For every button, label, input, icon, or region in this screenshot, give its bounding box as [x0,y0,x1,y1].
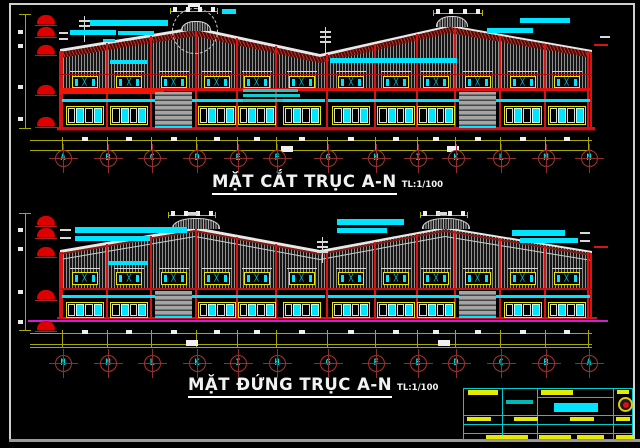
elevation-upper-louver-window: ╳ [289,272,315,285]
elevation-canopy [500,295,546,298]
elevation-steel-column [106,244,108,317]
section-dim-value-tick [214,137,220,141]
title-block-text-bar [486,435,528,439]
elevation-ridge-dim-end [168,212,169,218]
elevation-ridge-dim-tick [171,211,175,216]
section-wall-joint-line [552,71,582,72]
section-upper-louver-window: ╳ [554,76,580,88]
elevation-grid-bubble: N [55,355,72,372]
elevation-grid-bubble: B [538,355,555,372]
section-ridge-dim-end [217,8,218,14]
elevation-dim-grid-tick [545,330,546,347]
section-level-value-tick [18,85,23,89]
section-roller-door [459,92,496,128]
title-block-row-line [537,397,613,398]
elevation-steel-column [544,245,546,317]
section-dim-value-tick [254,137,260,141]
section-note-bar [330,58,457,63]
elevation-title: MẶT ĐỨNG TRỤC A-N [188,375,392,398]
elevation-dim-grid-tick [455,330,456,347]
section-window [332,106,370,125]
section-grid-bubble: F [269,150,286,167]
section-ridge-dim-end [482,10,483,16]
section-upper-louver-window: ╳ [161,76,187,88]
section-level-marker-icon [37,117,55,127]
elevation-steel-column [499,238,501,317]
section-ridge-dim-tick [211,7,215,12]
section-wall-joint-line [242,71,272,72]
elevation-roof-monitor [422,218,470,229]
section-lightning-rod-arm [79,20,90,22]
section-upper-louver-window: ╳ [383,76,409,88]
section-upper-louver-window: ╳ [244,76,270,88]
elevation-level-marker-icon [37,321,55,331]
elevation-level-marker-icon [37,290,55,300]
elevation-grid-bubble: M [100,355,117,372]
section-steel-column [106,43,108,127]
section-window [504,106,542,125]
section-grid-bubble: A [55,150,72,167]
elevation-dim-value-tick [171,330,177,334]
elevation-window [377,302,415,318]
elevation-grid-bubble: A [581,355,598,372]
section-upper-louver-window: ╳ [465,76,491,88]
elevation-level-dim-line [25,213,26,330]
elevation-upper-louver-window: ╳ [244,272,270,285]
section-ridge-dim-tick [463,9,467,14]
elevation-grid-bubble: D [448,355,465,372]
title-block-text-bar [514,417,538,421]
section-dim-value-tick [520,137,526,141]
section-note-bar [487,28,533,33]
section-grid-bubble: D [189,150,206,167]
section-ridge-dim-tick [173,7,177,12]
section-wall-joint-line [114,71,144,72]
elevation-dim-value-tick [126,330,132,334]
section-level-marker-base [35,25,57,26]
elevation-ref-dash [188,212,198,215]
elevation-window [66,302,104,318]
title-block-text-bar [577,435,604,439]
elevation-level-marker-icon [37,216,55,226]
section-level-value-tick [18,30,23,34]
section-window [238,106,276,125]
elevation-edge-post [590,253,593,317]
section-window [377,106,415,125]
section-note-bar [90,20,168,26]
elevation-ref-dash [60,229,71,231]
elevation-level-value-tick [18,290,23,294]
elevation-dim-grid-tick [417,330,418,347]
elevation-dim-grid-tick [500,330,501,347]
title-block-row-line [463,415,633,416]
title-block-text-bar [616,435,633,439]
elevation-grid-bubble: E [410,355,427,372]
section-upper-louver-window: ╳ [510,76,536,88]
section-dim-value-tick [82,137,88,141]
elevation-window [504,302,542,318]
elevation-level-value-tick [18,320,23,324]
elevation-dim-value-tick [299,330,305,334]
section-roof-monitor [436,16,468,27]
section-canopy [328,99,374,102]
elevation-steel-column [150,236,152,317]
section-level-dim-stub [19,128,31,129]
elevation-wall-joint-line [159,268,189,269]
section-dim-line-1 [30,140,592,141]
section-beam [60,88,164,94]
elevation-level-marker-base [35,331,57,332]
sheet-frame-top [9,3,634,5]
elevation-dim-grid-tick [62,330,63,347]
section-ridge-dim-tick [476,9,480,14]
section-grid-bubble: K [448,150,465,167]
section-note-bar [520,18,570,23]
section-canopy [500,99,546,102]
section-wall-joint-line [159,71,189,72]
section-dim-value-tick [348,137,354,141]
elevation-canopy [544,295,590,298]
section-upper-louver-window: ╳ [204,76,230,88]
elevation-wall-joint-line [202,268,232,269]
elevation-dim-value-tick [393,330,399,334]
elevation-canopy [328,295,374,298]
elevation-upper-louver-window: ╳ [204,272,230,285]
section-level-marker-base [35,55,57,56]
title-block-text-bar [539,435,571,439]
elevation-steel-column [61,252,63,317]
section-upper-louver-window: ╳ [72,76,98,88]
elevation-dim-value-tick [214,330,220,334]
elevation-ridge-dim-tick [448,211,452,216]
section-canopy [544,99,590,102]
section-lightning-rod-arm [79,25,90,27]
elevation-canopy [106,295,152,298]
elevation-wall-joint-line [552,268,582,269]
elevation-ridge-dim-tick [461,211,465,216]
section-title-group: MẶT CẮT TRỤC A-N TL:1/100 [212,172,443,195]
elevation-lightning-rod-arm [317,251,328,253]
section-dim-value-tick [299,137,305,141]
elevation-grid-bubble: L [144,355,161,372]
elevation-wall-joint-line [242,268,272,269]
elevation-wall-joint-line [421,268,451,269]
elevation-note-bar [337,228,387,233]
section-upper-louver-window: ╳ [116,76,142,88]
section-note-bar [103,39,115,42]
title-block-row-line [463,433,633,434]
elevation-note-bar [108,261,148,265]
elevation-dim-grid-tick [375,330,376,347]
section-spec-note-line [243,94,300,97]
section-canopy [62,99,108,102]
elevation-lightning-rod-arm [317,241,328,243]
elevation-upper-louver-window: ╳ [72,272,98,285]
section-steel-column [499,36,501,127]
elevation-ref-dash [437,212,447,215]
elevation-overall-dim-tick [438,340,450,346]
section-beam [60,74,592,75]
elevation-dim-line-1 [30,333,592,334]
section-level-marker-base [35,95,57,96]
section-grid-bubble: E [230,150,247,167]
elevation-canopy [62,295,108,298]
title-block-row-line [463,424,633,425]
elevation-wall-joint-line [336,268,366,269]
elevation-dim-value-tick [564,330,570,334]
elevation-level-marker-base [35,257,57,258]
elevation-level-value-tick [18,228,23,232]
section-canopy [279,99,325,102]
title-block-text-bar [468,390,498,395]
title-block-text-bar [570,417,594,421]
section-level-marker-icon [37,15,55,25]
section-upper-louver-window: ╳ [423,76,449,88]
elevation-window [110,302,148,318]
section-grid-bubble: B [100,150,117,167]
elevation-dim-value-tick [254,330,260,334]
elevation-grid-bubble: F [368,355,385,372]
elevation-note-bar [512,230,565,236]
elevation-grid-bubble: I [230,355,247,372]
elevation-upper-louver-window: ╳ [161,272,187,285]
section-grid-bubble: H [368,150,385,167]
elevation-beam [60,288,592,290]
section-lightning-rod-arm [320,36,331,38]
elevation-ref-dash-red [594,246,608,248]
section-window [417,106,455,125]
elevation-level-marker-base [35,226,57,227]
section-ridge-dim-label [188,3,200,7]
section-wall-joint-line [508,71,538,72]
elevation-ridge-dim-tick [423,211,427,216]
elevation-overall-dim-tick [186,340,198,346]
section-detail-circle [172,8,218,54]
elevation-dim-value-tick [475,330,481,334]
section-ridge-dim-tick [198,7,202,12]
section-upper-louver-window: ╳ [289,76,315,88]
section-dim-value-tick [393,137,399,141]
elevation-lightning-rod-arm [317,246,328,248]
section-dim-value-tick [564,137,570,141]
title-block-text-bar [467,417,491,421]
elevation-ref-dash [60,237,71,239]
section-wall-joint-line [287,71,317,72]
section-level-value-tick [18,117,23,121]
section-wall-joint-line [463,71,493,72]
elevation-ref-dash [580,232,590,234]
elevation-upper-louver-window: ╳ [423,272,449,285]
section-wall-joint-line [336,71,366,72]
elevation-dim-value-tick [82,330,88,334]
elevation-wall-joint-line [114,268,144,269]
elevation-roller-door [459,291,496,318]
elevation-upper-louver-window: ╳ [338,272,364,285]
section-detail-label [222,9,236,14]
elevation-wall-joint-line [287,268,317,269]
cad-canvas: MẶT CẮT TRỤC A-N TL:1/100 MẶT ĐỨNG TRỤC … [0,0,640,448]
section-roller-door [155,92,192,128]
elevation-level-marker-icon [37,228,55,238]
section-title: MẶT CẮT TRỤC A-N [212,172,397,195]
section-level-marker-icon [37,45,55,55]
section-ref-dash-red [594,44,608,46]
elevation-upper-louver-window: ╳ [554,272,580,285]
section-lightning-rod-arm [320,41,331,43]
title-block-text-bar [617,390,629,394]
elevation-dim-grid-tick [588,330,589,347]
section-canopy [413,99,459,102]
section-wall-joint-line [70,71,100,72]
section-level-marker-icon [37,27,55,37]
elevation-dim-grid-tick [276,330,277,347]
section-window [110,106,148,125]
elevation-dim-grid-tick [107,330,108,347]
section-level-value-tick [18,44,23,48]
section-grid-bubble: C [144,150,161,167]
section-dim-value-tick [126,137,132,141]
elevation-ridge-dim-end [215,212,216,218]
elevation-upper-louver-window: ╳ [383,272,409,285]
elevation-ref-dash [580,240,590,242]
elevation-dim-line-2 [30,344,592,345]
section-level-marker-base [35,37,57,38]
section-grid-bubble: M [538,150,555,167]
section-window [548,106,586,125]
elevation-ridge-dim-end [420,212,421,218]
section-note-bar [110,60,147,64]
elevation-wall-joint-line [508,268,538,269]
section-steel-column [150,36,152,127]
elevation-title-group: MẶT ĐỨNG TRỤC A-N TL:1/100 [188,375,438,398]
section-level-dim-stub [19,14,31,15]
elevation-level-dim-stub [19,213,31,214]
title-block-label-bar [506,400,533,404]
elevation-window [198,302,236,318]
section-grid-bubble: N [581,150,598,167]
emblem-icon [618,397,633,412]
elevation-scale: TL:1/100 [397,383,438,393]
sheet-frame-right [633,3,635,440]
section-level-marker-icon [37,85,55,95]
elevation-window [332,302,370,318]
section-grid-bubble: I [410,150,427,167]
section-ridge-dim-tick [436,9,440,14]
section-ref-dash [600,36,610,38]
section-upper-louver-window: ╳ [338,76,364,88]
section-spec-note-line [243,99,283,102]
elevation-ground-line [30,347,592,348]
section-lightning-rod-arm [320,31,331,33]
elevation-dim-grid-tick [327,330,328,347]
elevation-upper-louver-window: ╳ [465,272,491,285]
elevation-upper-louver-window: ╳ [116,272,142,285]
elevation-note-bar [337,219,404,225]
section-scale: TL:1/100 [402,180,443,190]
section-note-bar [118,31,154,35]
elevation-window [417,302,455,318]
elevation-grid-bubble: C [493,355,510,372]
section-steel-column [374,44,376,127]
elevation-dim-value-tick [520,330,526,334]
section-ridge-dim-tick [186,7,190,12]
section-ref-dash [59,38,68,40]
elevation-ridge-dim-end [467,212,468,218]
section-note-bar [70,30,116,35]
section-level-marker-base [35,127,57,128]
section-wall-joint-line [421,71,451,72]
elevation-beam [28,320,608,322]
elevation-wall-joint-line [381,268,411,269]
elevation-canopy [279,295,325,298]
section-ridge-dim-tick [449,9,453,14]
sheet-frame-left [9,3,11,440]
section-grid-bubble: G [320,150,337,167]
section-dim-value-tick [475,137,481,141]
section-dim-value-tick [433,137,439,141]
elevation-note-bar [75,236,150,241]
elevation-dim-value-tick [348,330,354,334]
section-ridge-dim-end [433,10,434,16]
section-window [66,106,104,125]
elevation-ridge-dim-tick [209,211,213,216]
elevation-grid-bubble: K [189,355,206,372]
section-beam [57,130,595,131]
elevation-wall-joint-line [70,268,100,269]
section-canopy [106,99,152,102]
elevation-level-dim-stub [19,330,31,331]
elevation-dim-value-tick [433,330,439,334]
section-dim-value-tick [171,137,177,141]
elevation-wall-joint-line [463,268,493,269]
elevation-upper-louver-window: ╳ [510,272,536,285]
title-block-text-bar [541,390,573,395]
section-grid-bubble: L [493,150,510,167]
section-wall-joint-line [381,71,411,72]
elevation-window [283,302,321,318]
section-steel-column [544,44,546,127]
section-dim-line-2 [30,150,592,151]
elevation-note-bar [520,238,578,243]
elevation-steel-column [374,242,376,317]
title-block-text-bar [616,417,630,421]
section-level-dim-line [25,14,26,128]
elevation-grid-bubble: G [320,355,337,372]
elevation-level-marker-icon [37,247,55,257]
section-ref-dash [59,32,68,34]
section-wall-joint-line [202,71,232,72]
elevation-steel-column [326,251,328,317]
section-ridge-dim-end [170,8,171,14]
elevation-dim-grid-tick [151,330,152,347]
elevation-level-marker-base [35,238,57,239]
section-spec-note-line [243,89,298,92]
section-window [198,106,236,125]
elevation-window [548,302,586,318]
elevation-dim-grid-tick [237,330,238,347]
elevation-canopy [413,295,459,298]
section-window [283,106,321,125]
title-block-highlight-bar [554,403,598,412]
elevation-roller-door [155,291,192,318]
elevation-canopy [234,295,280,298]
elevation-window [238,302,276,318]
elevation-note-bar [75,227,187,233]
elevation-edge-post [59,252,61,317]
elevation-level-marker-base [35,300,57,301]
elevation-grid-bubble: H [269,355,286,372]
elevation-level-value-tick [18,247,23,251]
